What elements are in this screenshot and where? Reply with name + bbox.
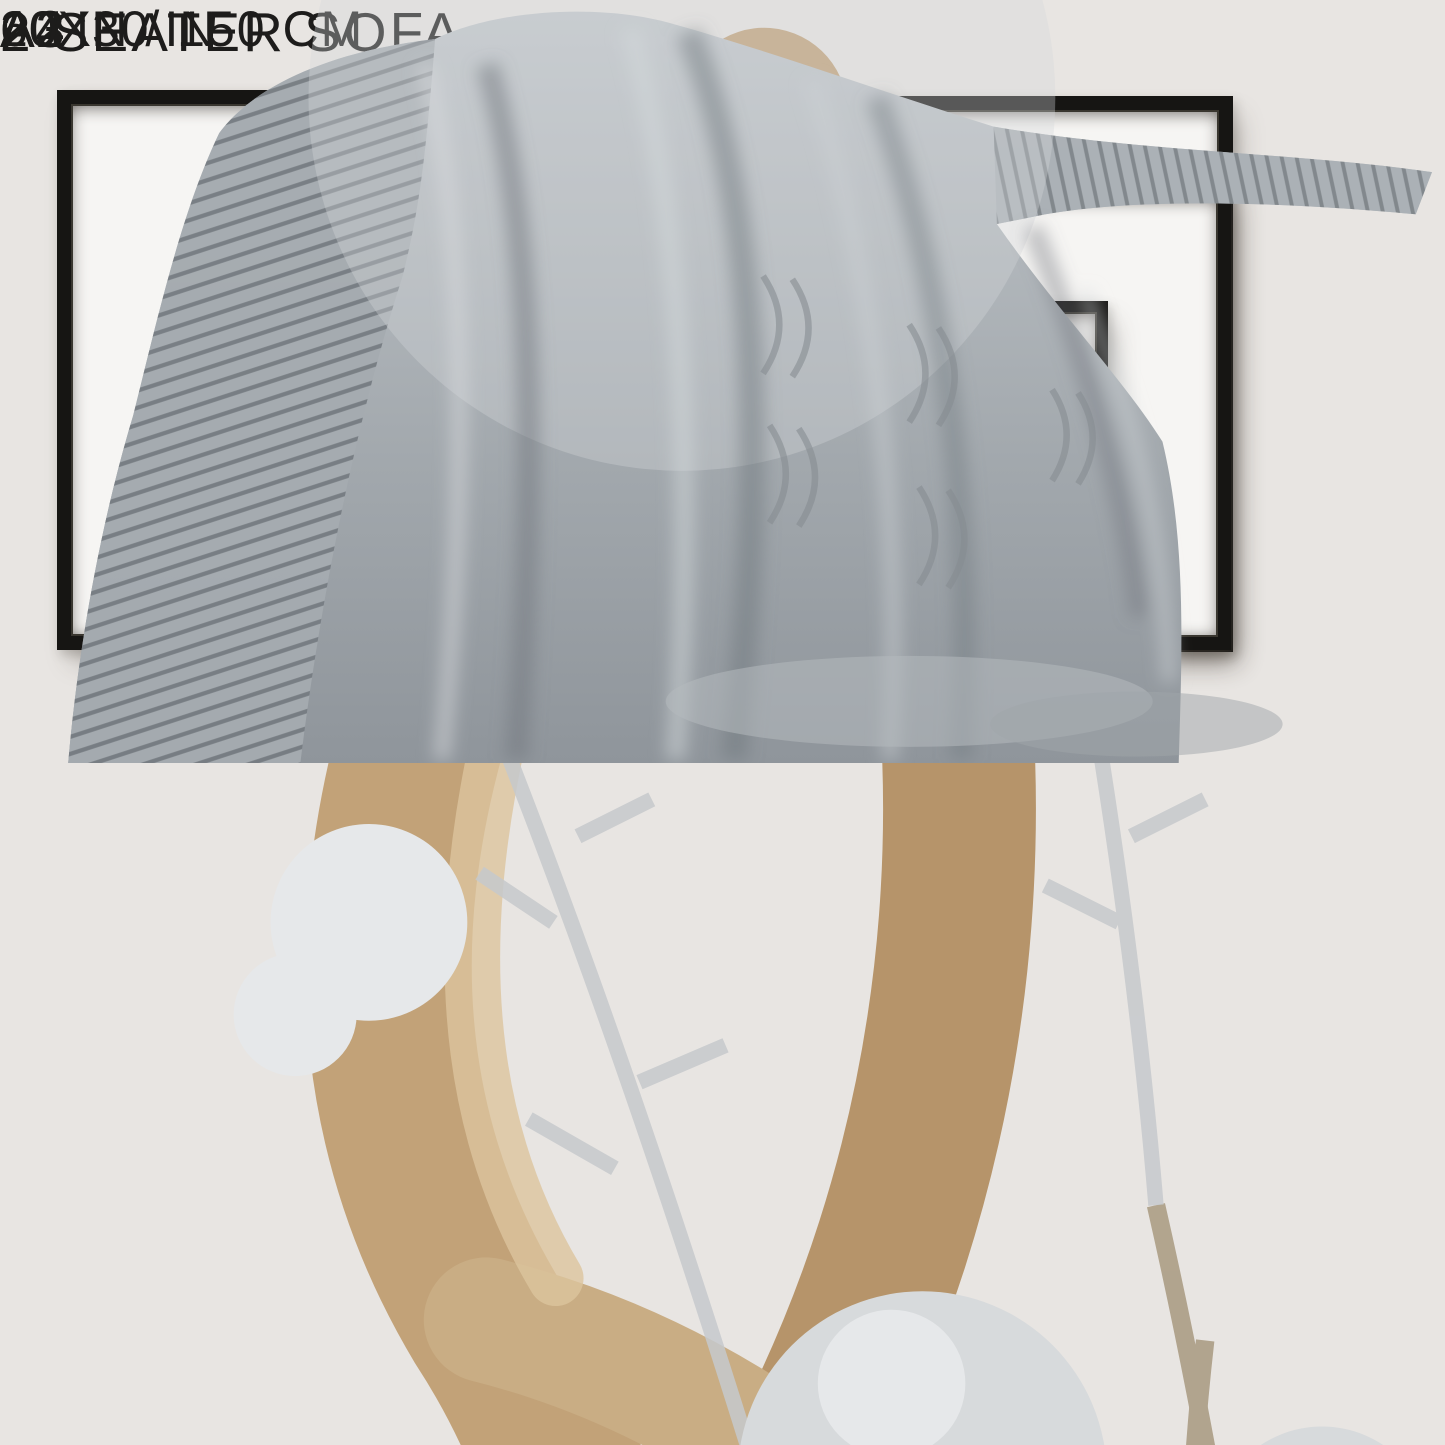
knit-throw-blanket [0,0,1445,763]
room-scene: 20X30 IN A2 A3 A4 2 SEATER SOFA 60 IN / … [0,0,1445,1445]
